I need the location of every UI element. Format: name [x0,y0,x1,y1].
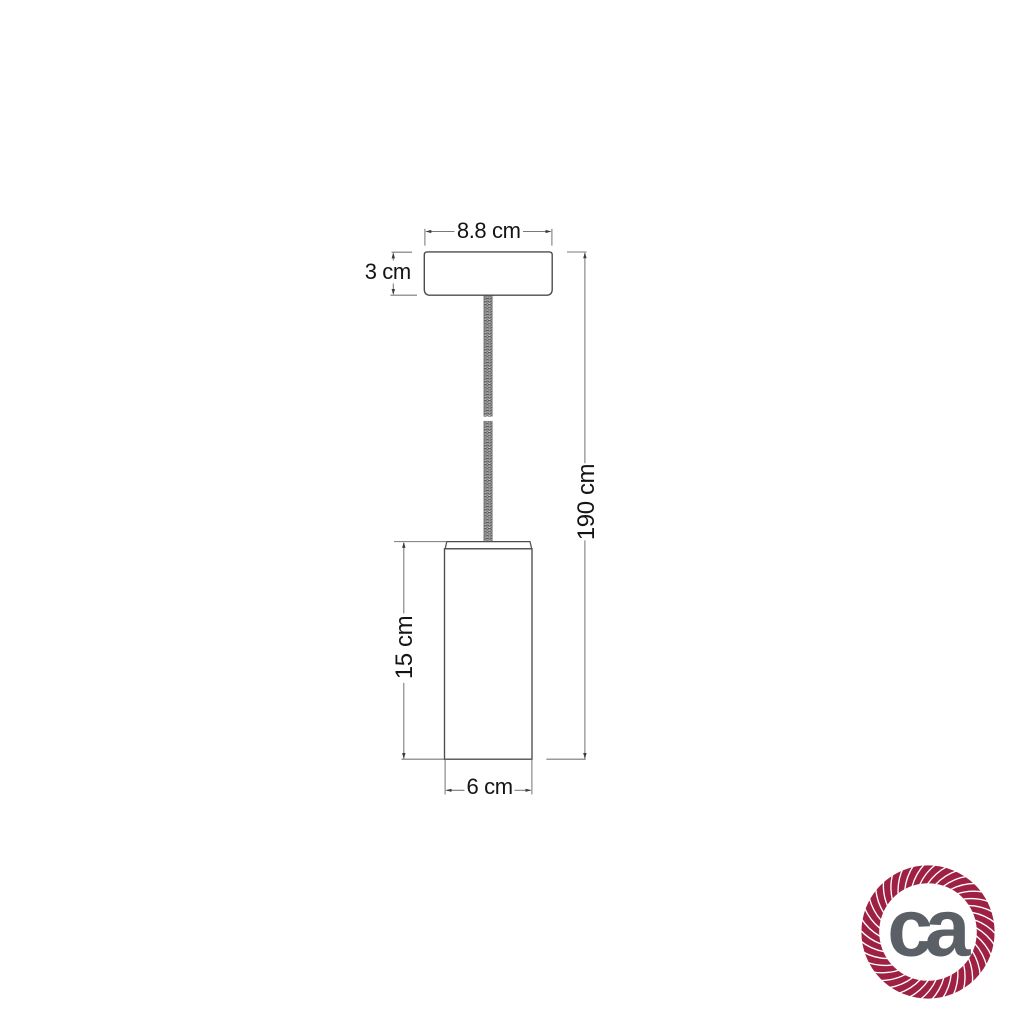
svg-text:8.8 cm: 8.8 cm [457,218,521,243]
svg-text:6 cm: 6 cm [467,774,513,799]
svg-text:15 cm: 15 cm [391,616,418,679]
svg-text:3 cm: 3 cm [365,259,411,284]
svg-text:190 cm: 190 cm [573,464,600,540]
svg-text:ca: ca [887,882,971,973]
